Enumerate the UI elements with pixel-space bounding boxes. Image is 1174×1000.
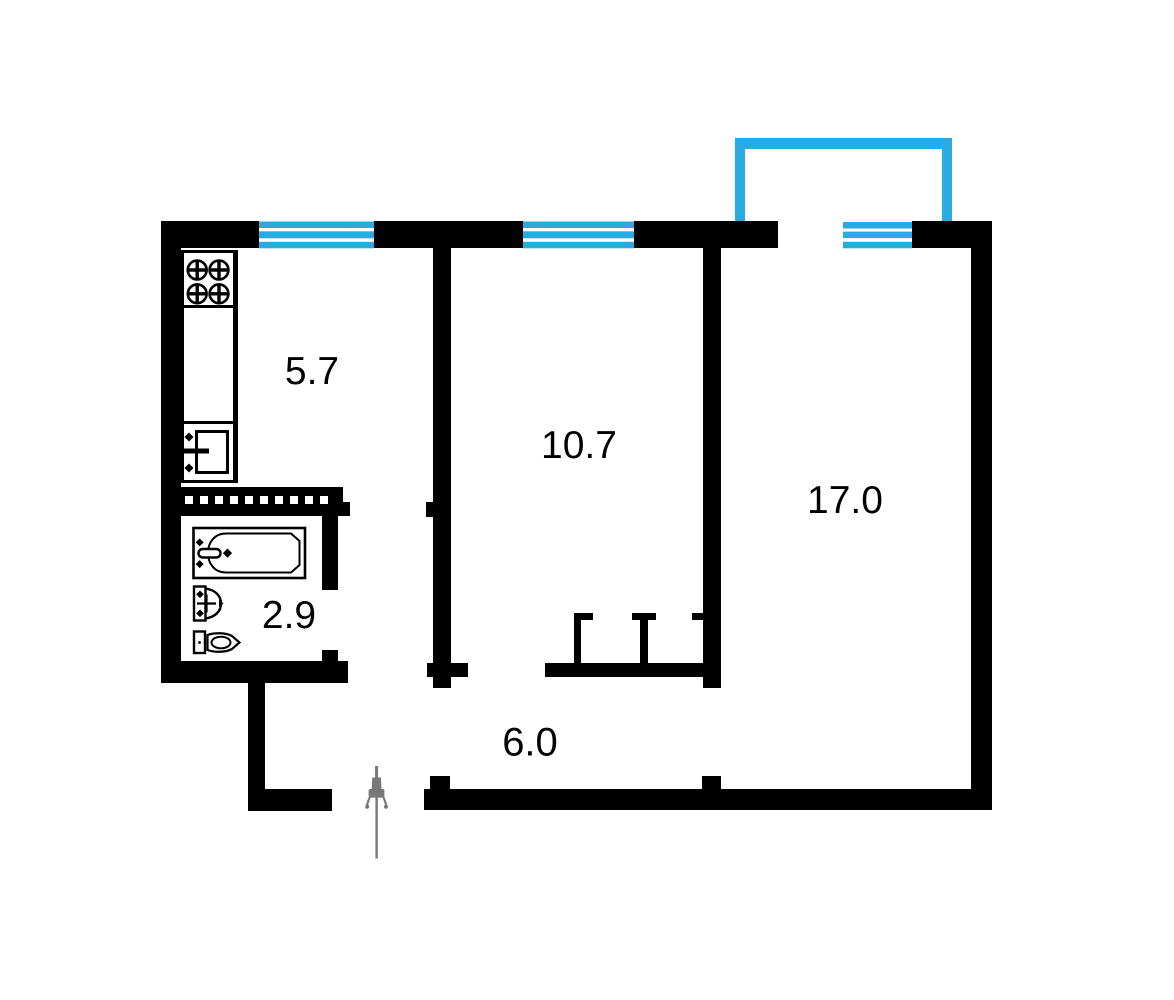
svg-text:10.7: 10.7 bbox=[541, 424, 617, 467]
svg-text:6.0: 6.0 bbox=[502, 721, 558, 765]
svg-text:17.0: 17.0 bbox=[807, 479, 883, 522]
svg-text:5.7: 5.7 bbox=[285, 350, 339, 393]
svg-text:2.9: 2.9 bbox=[262, 594, 316, 637]
